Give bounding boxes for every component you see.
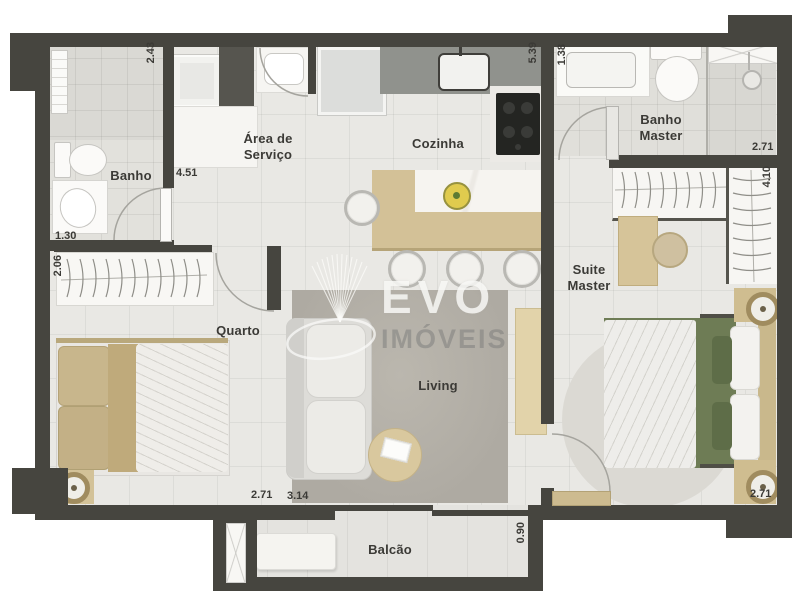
quarto-label: Quarto: [216, 323, 260, 339]
balcony-slider-panel-1: [335, 505, 433, 511]
balcao-left-window: [226, 523, 246, 583]
dim-banho-master-width: 2.71: [752, 142, 773, 153]
banho-label: Banho: [110, 168, 151, 184]
dim-banho-side: 2.43: [146, 42, 157, 63]
wall-balcao-right: [528, 505, 543, 591]
dim-quarto-closet-width: 2.06: [53, 255, 64, 276]
wall-banho-divider: [163, 40, 174, 188]
dim-suite-length: 4.10: [762, 166, 773, 187]
dim-banho-master-counter: 1.38: [557, 44, 568, 65]
wall-quarto-bottom: [35, 505, 335, 520]
dim-cozinha-length: 5.39: [528, 42, 539, 63]
suite-master-label: Suite Master: [560, 262, 618, 295]
dim-living-width: 3.14: [287, 491, 308, 502]
closet-rail: [54, 245, 212, 252]
banho-master-label: Banho Master: [629, 112, 693, 145]
wall-balcao-bottom: [213, 577, 543, 591]
floor-plan-canvas: Banho Área de Serviço Cozinha Banho Mast…: [0, 0, 812, 600]
dim-quarto-width: 2.71: [251, 490, 272, 501]
balcao-label: Balcão: [368, 542, 412, 558]
living-label: Living: [418, 378, 457, 394]
banho-master-door: [606, 106, 619, 160]
dim-quarto-closet-offset: 1.30: [55, 231, 76, 242]
dim-balcao-depth: 0.90: [516, 522, 527, 543]
banho-door: [160, 188, 172, 242]
dim-suite-width: 2.71: [750, 489, 771, 500]
wall-entry-stub: [308, 40, 316, 94]
wall-suite-bottom: [541, 505, 777, 520]
wall-top: [35, 33, 735, 47]
cozinha-label: Cozinha: [412, 136, 464, 152]
suite-door: [552, 491, 611, 506]
wall-top-left-block: [10, 33, 38, 91]
quarto-door: [267, 246, 281, 310]
dim-banho-width: 4.51: [176, 168, 197, 179]
wall-left: [35, 33, 50, 507]
wall-right: [777, 15, 792, 507]
wall-living-suite: [541, 40, 554, 424]
balcony-slider-panel-2: [432, 510, 542, 516]
area-servico-label: Área de Serviço: [231, 131, 305, 164]
wall-banho-master-bottom: [609, 155, 777, 168]
